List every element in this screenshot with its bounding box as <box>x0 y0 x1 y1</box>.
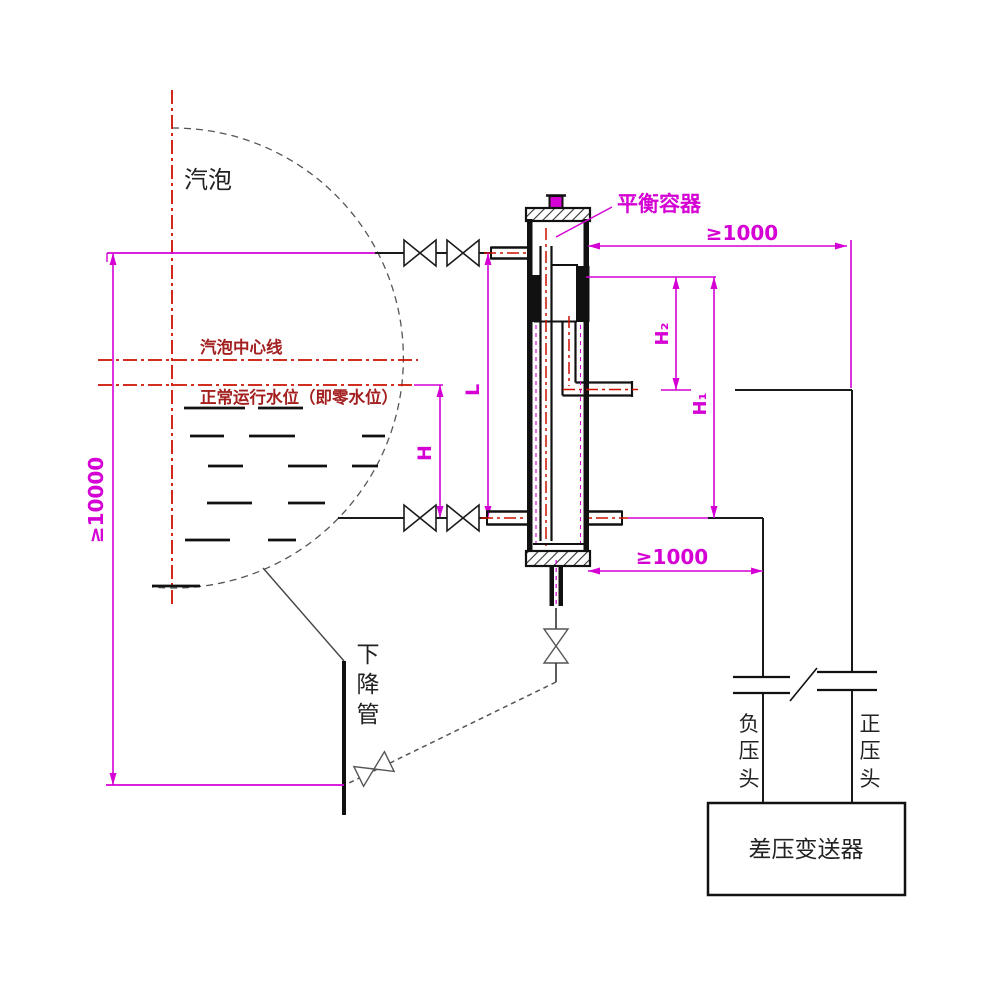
svg-text:压: 压 <box>739 739 760 763</box>
dimension-1000-top <box>588 240 851 388</box>
vessel-right-wall-band <box>576 266 590 322</box>
vessel-left-wall-band <box>527 275 540 322</box>
negative-head-label: 负 压 头 <box>739 712 760 791</box>
upper-tap-extension-line <box>107 253 375 262</box>
svg-text:管: 管 <box>357 702 380 728</box>
dimension-10000 <box>110 253 117 785</box>
balance-vessel-installation-diagram: ≥10000 L H <box>0 0 1000 1000</box>
dimension-H2-label: H₂ <box>652 323 673 346</box>
drum-centerline-label: 汽泡中心线 <box>200 337 283 357</box>
dimension-H <box>437 385 444 518</box>
transmitter-label: 差压变送器 <box>749 837 864 863</box>
positive-head-label: 正 压 头 <box>860 712 881 791</box>
lower-isolation-valve-1 <box>404 505 436 531</box>
lower-isolation-valve-2 <box>447 505 479 531</box>
water-surface-dashes <box>152 408 385 586</box>
dimension-L-label: L <box>462 384 484 396</box>
drum-to-downcomer-line <box>263 568 344 661</box>
drum-label: 汽泡 <box>184 166 232 194</box>
vessel-top-cap <box>526 208 590 221</box>
vessel-left-wall <box>527 219 533 551</box>
vessel-bottom-nozzle-right <box>559 566 564 606</box>
normal-water-level-label: 正常运行水位（即零水位） <box>200 387 398 407</box>
dimension-1000-bottom-label: ≥1000 <box>636 545 708 569</box>
downcomer-label: 下 降 管 <box>357 642 380 728</box>
dimension-L <box>485 253 492 518</box>
svg-text:降: 降 <box>357 672 380 698</box>
svg-text:头: 头 <box>860 767 881 791</box>
dimension-H-label: H <box>414 445 436 461</box>
drain-valve <box>544 629 568 663</box>
dimension-H1 <box>711 277 718 518</box>
svg-text:下: 下 <box>357 642 380 668</box>
dimension-1000-top-label: ≥1000 <box>706 221 778 245</box>
upper-isolation-valve-2 <box>447 240 479 266</box>
vessel-label: 平衡容器 <box>617 192 702 216</box>
svg-text:压: 压 <box>860 739 881 763</box>
svg-text:头: 头 <box>739 767 760 791</box>
svg-text:正: 正 <box>860 712 881 736</box>
dimension-10000-label: ≥10000 <box>84 457 108 543</box>
vessel-bottom-nozzle-left <box>550 566 555 606</box>
svg-text:负: 负 <box>739 712 760 736</box>
dimension-H1-label: H₁ <box>690 393 711 416</box>
upper-isolation-valve-1 <box>404 240 436 266</box>
drain-slant-valve <box>354 752 394 787</box>
balance-vessel <box>526 196 638 611</box>
diagram-canvas: ≥10000 L H <box>0 0 1000 1000</box>
pipe-break-symbol <box>733 668 877 701</box>
vessel-bottom-flange <box>526 551 590 566</box>
